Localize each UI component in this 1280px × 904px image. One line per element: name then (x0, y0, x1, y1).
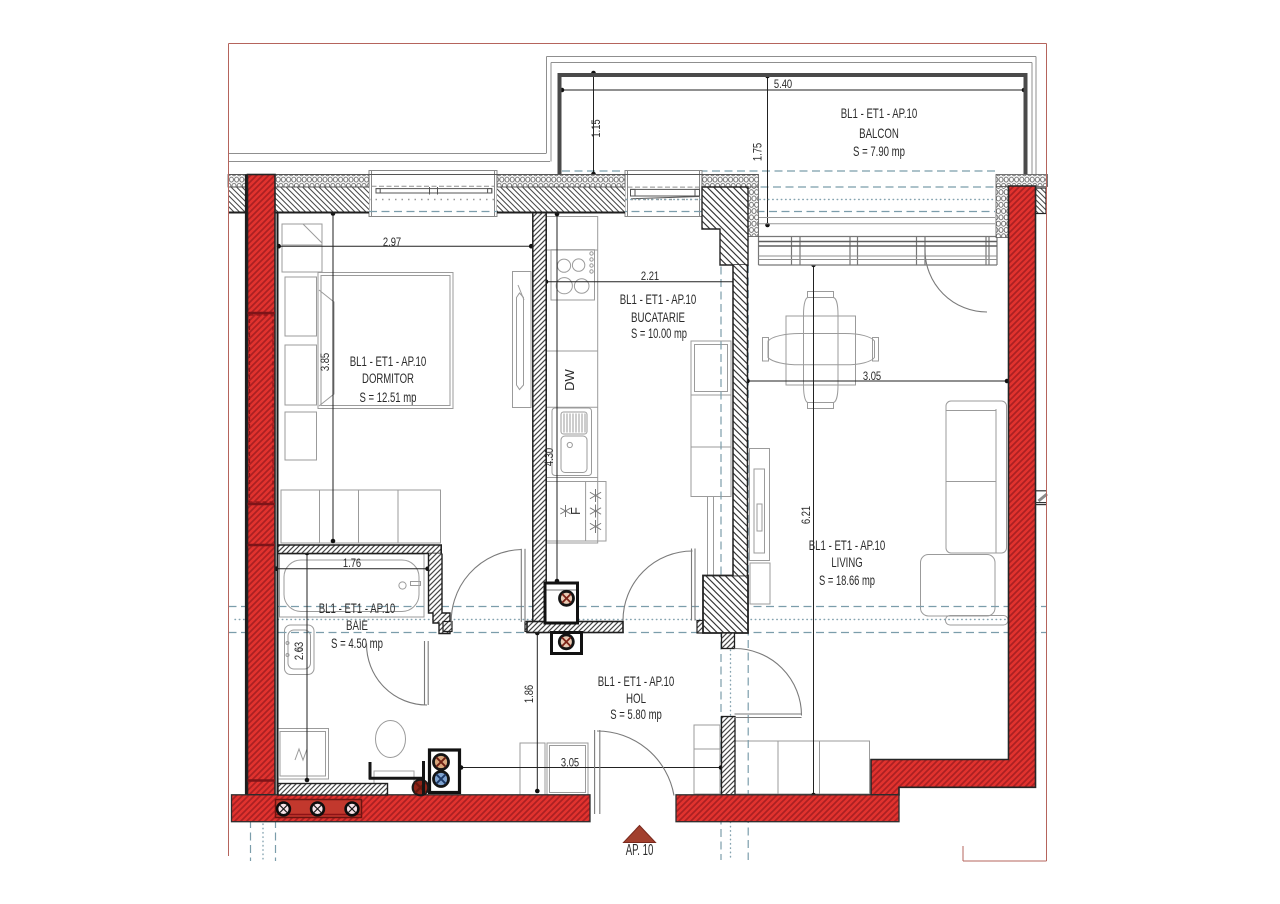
svg-text:1.86: 1.86 (523, 685, 536, 703)
svg-text:2.21: 2.21 (641, 270, 659, 283)
svg-text:S = 12.51 mp: S = 12.51 mp (360, 389, 417, 405)
svg-text:BL1 - ET1 - AP.10: BL1 - ET1 - AP.10 (319, 600, 396, 616)
svg-text:AP. 10: AP. 10 (626, 841, 654, 859)
svg-text:DW: DW (562, 368, 577, 390)
svg-text:1.15: 1.15 (590, 119, 603, 137)
svg-text:3.85: 3.85 (319, 353, 332, 371)
svg-text:BUCATARIE: BUCATARIE (631, 309, 685, 325)
svg-text:2.97: 2.97 (383, 236, 401, 249)
svg-text:S = 10.00 mp: S = 10.00 mp (631, 325, 687, 341)
svg-text:BL1 - ET1 - AP.10: BL1 - ET1 - AP.10 (350, 353, 427, 369)
svg-text:5.40: 5.40 (774, 78, 792, 91)
svg-text:S = 5.80 mp: S = 5.80 mp (610, 706, 662, 722)
svg-text:S = 18.66 mp: S = 18.66 mp (819, 572, 875, 588)
svg-text:2.63: 2.63 (293, 642, 306, 660)
svg-text:BL1 - ET1 - AP.10: BL1 - ET1 - AP.10 (598, 673, 675, 689)
svg-text:1.76: 1.76 (343, 557, 361, 570)
svg-text:3.05: 3.05 (561, 757, 579, 770)
svg-text:BL1 - ET1 - AP.10: BL1 - ET1 - AP.10 (809, 537, 886, 553)
svg-text:BAIE: BAIE (346, 617, 368, 633)
svg-text:BL1 - ET1 - AP.10: BL1 - ET1 - AP.10 (620, 291, 697, 307)
svg-text:HOL: HOL (626, 690, 646, 706)
svg-text:6.21: 6.21 (800, 506, 813, 524)
svg-text:DORMITOR: DORMITOR (362, 370, 414, 386)
svg-text:BALCON: BALCON (859, 125, 899, 141)
svg-text:S = 4.50 mp: S = 4.50 mp (331, 635, 383, 651)
svg-text:3.05: 3.05 (863, 370, 881, 383)
svg-text:1.75: 1.75 (752, 143, 765, 161)
svg-text:S = 7.90 mp: S = 7.90 mp (853, 143, 905, 159)
svg-text:4.30: 4.30 (543, 448, 556, 466)
svg-text:LIVING: LIVING (831, 554, 862, 570)
svg-text:BL1 - ET1 - AP.10: BL1 - ET1 - AP.10 (841, 105, 918, 121)
